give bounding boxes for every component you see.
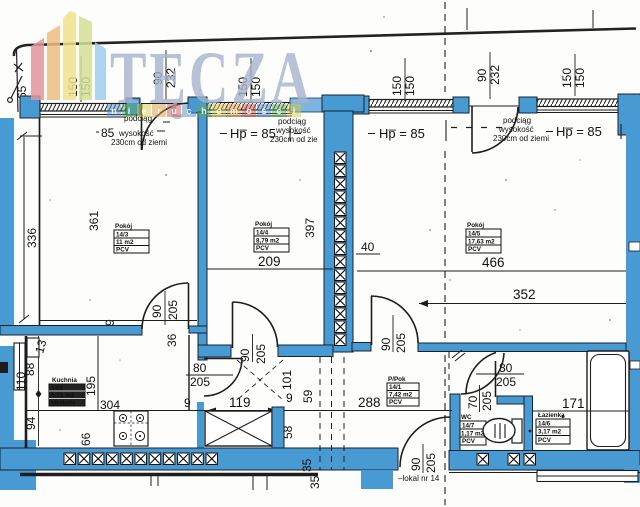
svg-text:wysokość: wysokość <box>118 129 154 138</box>
svg-text:9: 9 <box>184 396 191 410</box>
svg-text:i: i <box>128 106 131 116</box>
svg-text:205: 205 <box>254 344 268 364</box>
svg-text:36: 36 <box>165 333 179 347</box>
svg-text:119: 119 <box>229 395 251 410</box>
svg-text:P/Pok: P/Pok <box>388 376 406 383</box>
svg-text:8,79 m2: 8,79 m2 <box>256 238 280 245</box>
svg-text:40: 40 <box>361 240 375 254</box>
svg-text:u: u <box>171 106 177 116</box>
svg-text:r: r <box>157 106 161 116</box>
svg-text:59: 59 <box>301 389 315 403</box>
svg-text:Pokój: Pokój <box>115 223 132 230</box>
svg-text:35: 35 <box>300 458 314 472</box>
svg-text:PCV: PCV <box>462 438 476 445</box>
svg-text:9: 9 <box>286 391 293 405</box>
svg-text:m: m <box>230 106 238 116</box>
svg-text:171: 171 <box>562 396 585 411</box>
svg-text:230cm od zie: 230cm od zie <box>270 135 318 144</box>
svg-text:14/3: 14/3 <box>116 232 129 239</box>
svg-text:35: 35 <box>308 475 322 489</box>
svg-text:17,63 m2: 17,63 m2 <box>468 239 495 246</box>
svg-text:205: 205 <box>190 375 210 389</box>
svg-text:i: i <box>293 106 296 116</box>
svg-text:150: 150 <box>560 68 574 88</box>
svg-text:o: o <box>216 106 222 116</box>
svg-text:PCV: PCV <box>538 437 552 444</box>
svg-text:14/7: 14/7 <box>462 423 475 430</box>
svg-text:66: 66 <box>79 432 93 446</box>
svg-text:205: 205 <box>496 375 516 389</box>
svg-text:5,71 m2: 5,71 m2 <box>51 392 75 399</box>
svg-text:90: 90 <box>379 337 393 351</box>
svg-text:e: e <box>141 106 146 116</box>
svg-text:n: n <box>111 106 117 116</box>
svg-text:288: 288 <box>358 395 381 410</box>
svg-text:PCV: PCV <box>389 399 403 406</box>
svg-text:Łazienka: Łazienka <box>538 412 565 419</box>
svg-text:7,42 m2: 7,42 m2 <box>389 392 413 399</box>
svg-text:230cm od ziemi: 230cm od ziemi <box>111 138 167 147</box>
svg-text:195: 195 <box>84 376 98 396</box>
svg-text:–lokal nr 14: –lokal nr 14 <box>398 474 440 483</box>
svg-text:80: 80 <box>499 361 513 375</box>
svg-text:c: c <box>186 106 191 116</box>
svg-text:11 m2: 11 m2 <box>116 239 134 246</box>
svg-text:232: 232 <box>488 65 502 85</box>
svg-text:1,17 m2: 1,17 m2 <box>461 431 485 438</box>
svg-text:Pokój: Pokój <box>467 222 484 229</box>
svg-text:14/5: 14/5 <box>468 231 481 238</box>
svg-text:WC: WC <box>461 414 472 421</box>
svg-text:Hp̅ = 85: Hp̅ = 85 <box>379 126 425 141</box>
svg-text:94: 94 <box>24 416 38 430</box>
svg-text:205: 205 <box>480 391 494 411</box>
svg-text:304: 304 <box>100 398 120 412</box>
svg-text:wysokość: wysokość <box>275 126 311 135</box>
svg-text:PCV: PCV <box>468 246 482 253</box>
svg-text:Hp̅ = 85: Hp̅ = 85 <box>556 124 602 139</box>
svg-text:90: 90 <box>150 304 164 318</box>
svg-text:80: 80 <box>193 361 207 375</box>
svg-text:150: 150 <box>390 76 404 96</box>
svg-text:h: h <box>201 106 207 116</box>
svg-text:70: 70 <box>466 395 480 409</box>
svg-text:c: c <box>276 106 281 116</box>
svg-text:90: 90 <box>238 348 252 362</box>
svg-text:PCV: PCV <box>256 245 270 252</box>
svg-text:Kuchnia: Kuchnia <box>52 377 77 384</box>
svg-text:terakota: terakota <box>51 400 76 407</box>
svg-text:podciąg: podciąg <box>503 116 531 125</box>
svg-text:14/6: 14/6 <box>538 421 551 428</box>
svg-text:PCV: PCV <box>116 247 130 254</box>
svg-text:150: 150 <box>403 76 417 96</box>
svg-text:14/1: 14/1 <box>389 384 402 391</box>
svg-text:352: 352 <box>513 287 536 302</box>
svg-text:3,17 m2: 3,17 m2 <box>538 429 562 436</box>
svg-text:88: 88 <box>23 362 37 376</box>
svg-text:150: 150 <box>573 68 587 88</box>
svg-text:14/4: 14/4 <box>256 230 269 237</box>
svg-text:205: 205 <box>424 453 438 473</box>
svg-text:466: 466 <box>482 255 505 270</box>
svg-text:361: 361 <box>87 211 101 231</box>
svg-text:wysokość: wysokość <box>498 125 534 134</box>
svg-text:209: 209 <box>258 254 281 269</box>
svg-text:o: o <box>246 106 252 116</box>
svg-text:Pokój: Pokój <box>255 221 272 228</box>
svg-text:397: 397 <box>303 218 317 238</box>
svg-text:336: 336 <box>25 228 39 248</box>
svg-text:90: 90 <box>475 68 489 82</box>
svg-text:230cm od ziemi: 230cm od ziemi <box>493 134 549 143</box>
svg-text:ś: ś <box>261 106 266 116</box>
svg-text:90: 90 <box>409 457 423 471</box>
svg-text:101: 101 <box>280 370 294 390</box>
svg-text:205: 205 <box>394 333 408 353</box>
svg-text:205: 205 <box>166 300 180 320</box>
svg-text:14/2: 14/2 <box>51 385 64 392</box>
